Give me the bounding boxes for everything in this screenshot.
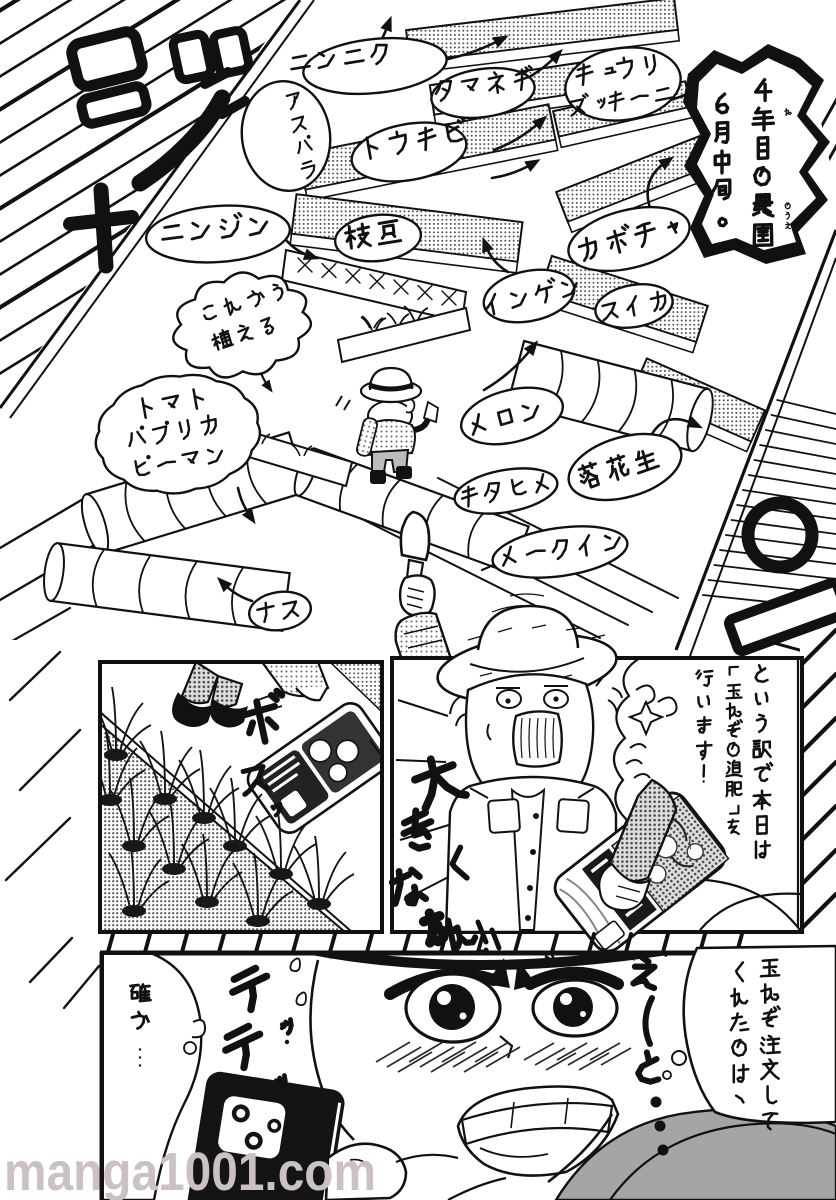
svg-text:manga1001.com: manga1001.com: [4, 1142, 376, 1200]
